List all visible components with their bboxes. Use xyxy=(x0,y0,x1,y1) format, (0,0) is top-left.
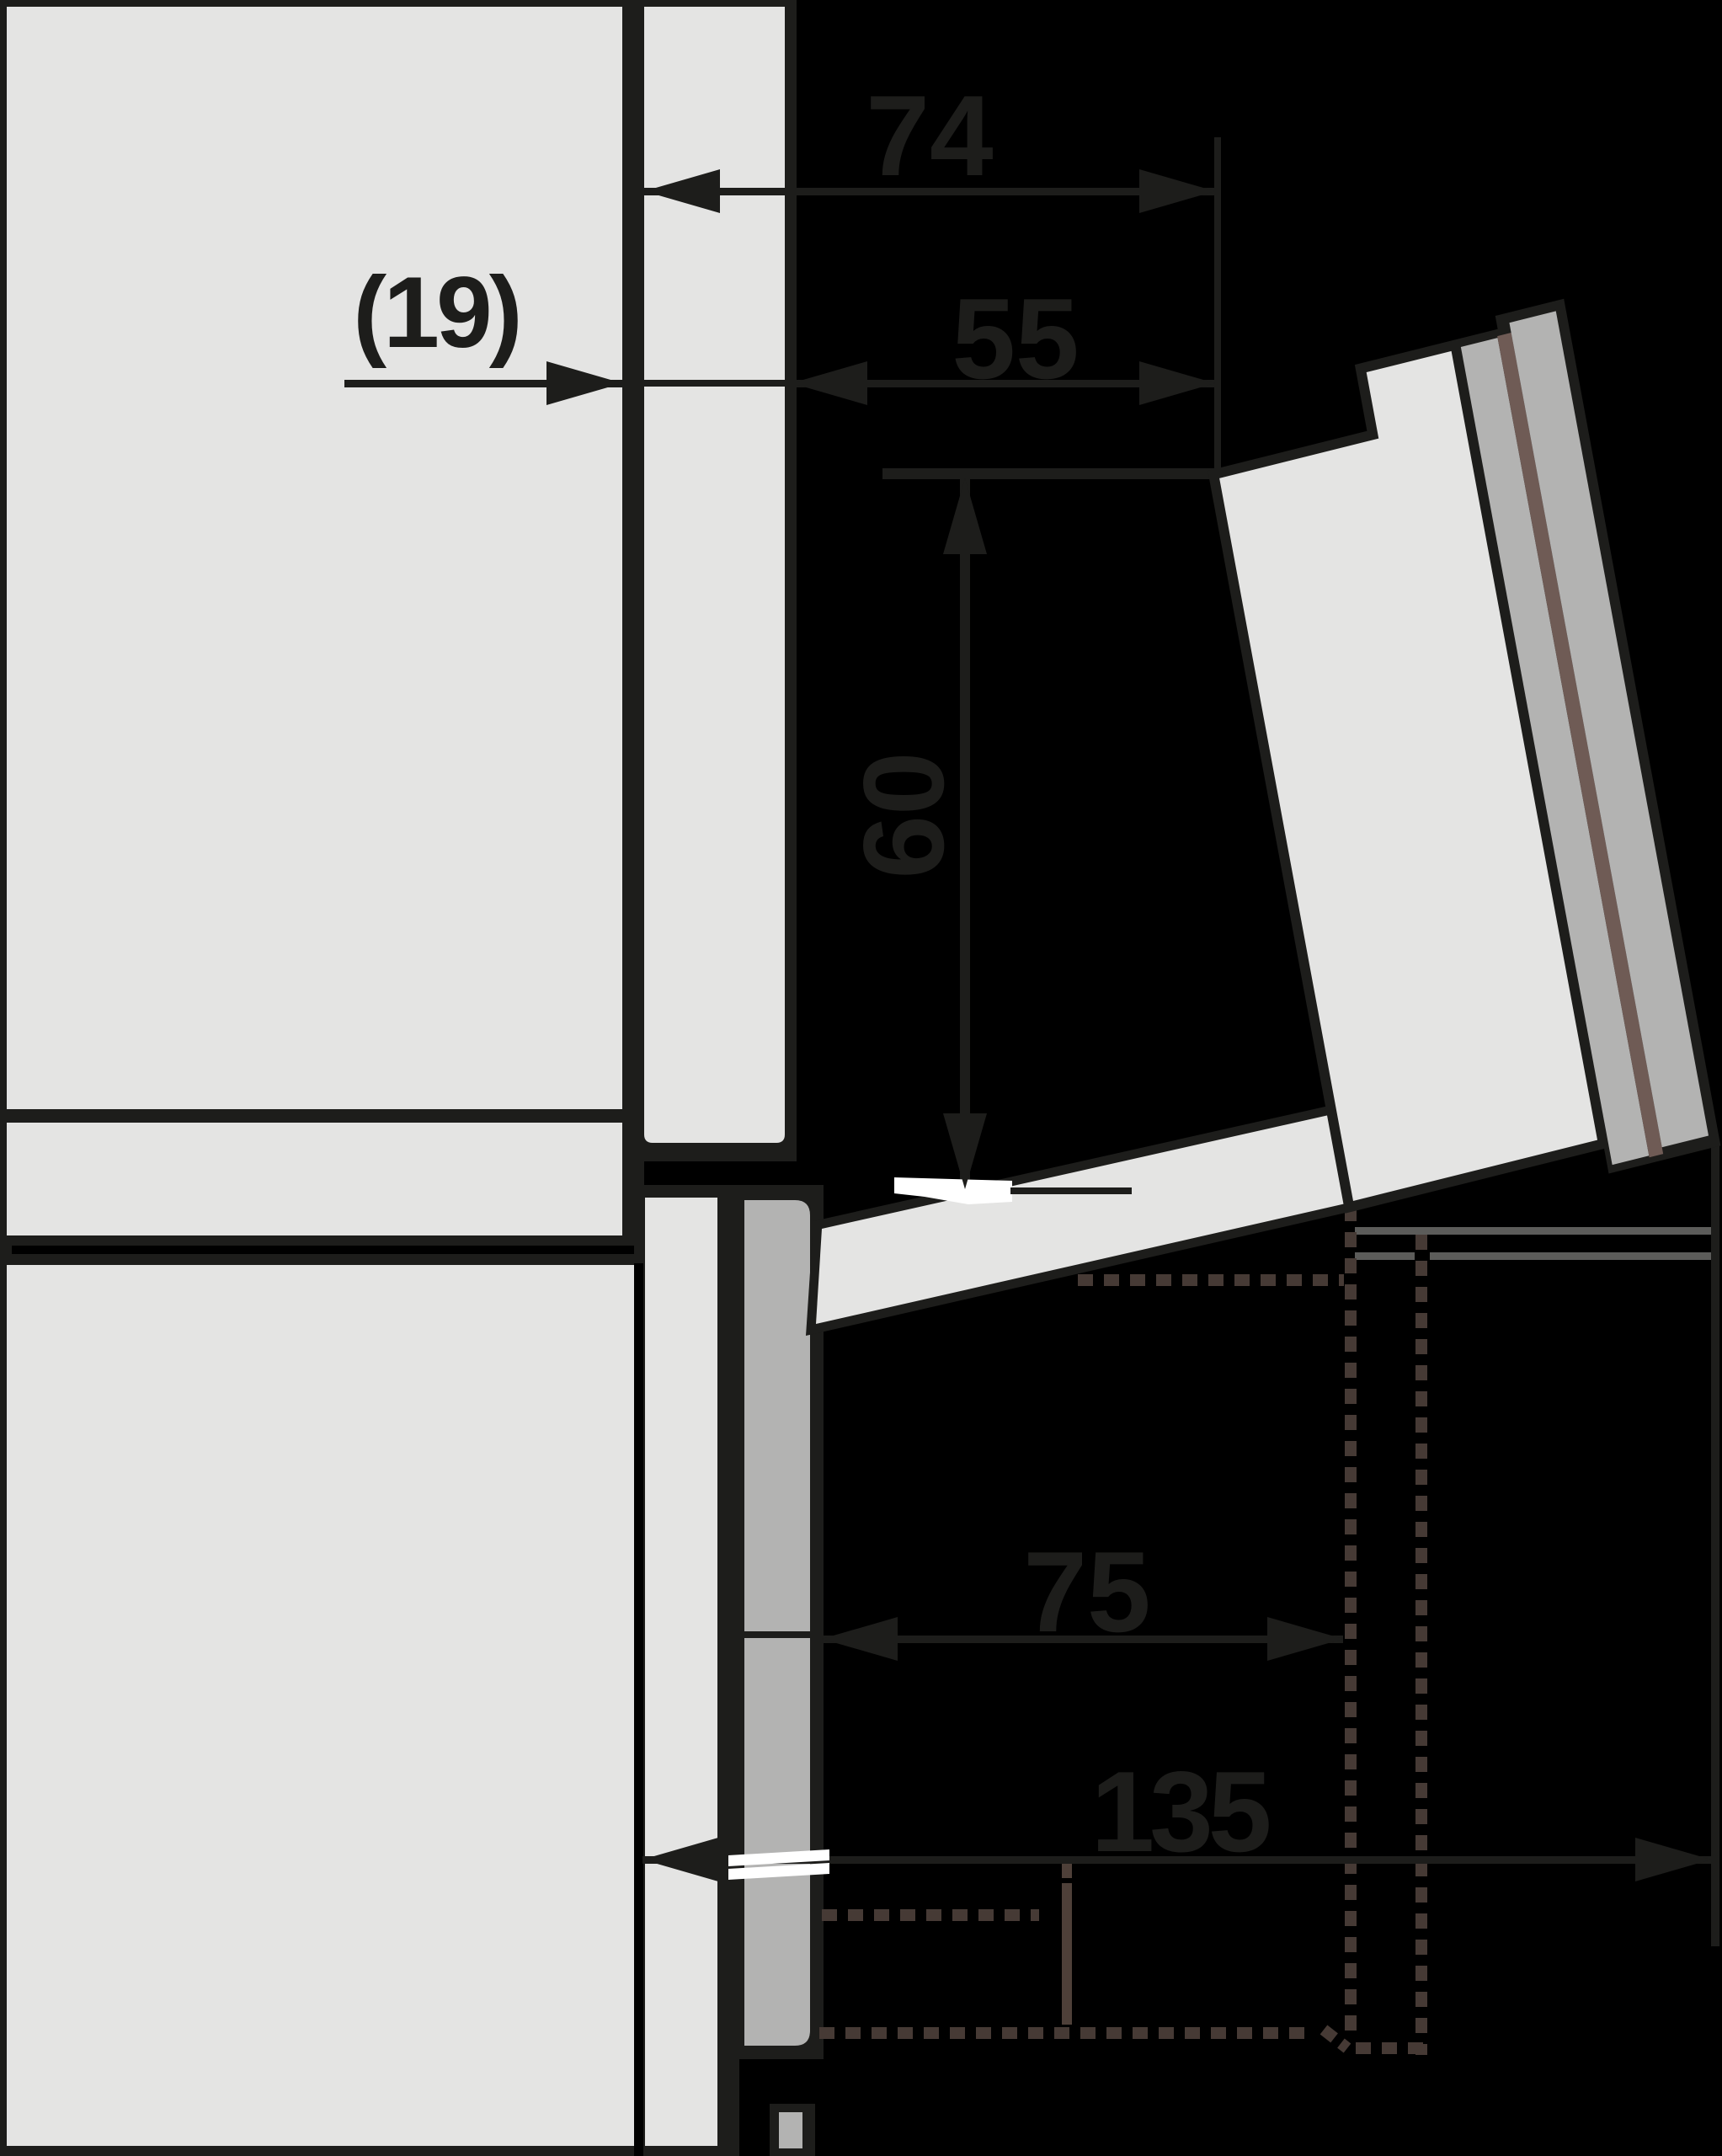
svg-text:135: 135 xyxy=(1091,1748,1269,1876)
svg-text:60: 60 xyxy=(840,751,968,878)
svg-text:(19): (19) xyxy=(353,256,519,369)
svg-text:55: 55 xyxy=(952,275,1079,403)
svg-text:75: 75 xyxy=(1023,1528,1150,1656)
svg-text:74: 74 xyxy=(866,72,993,200)
